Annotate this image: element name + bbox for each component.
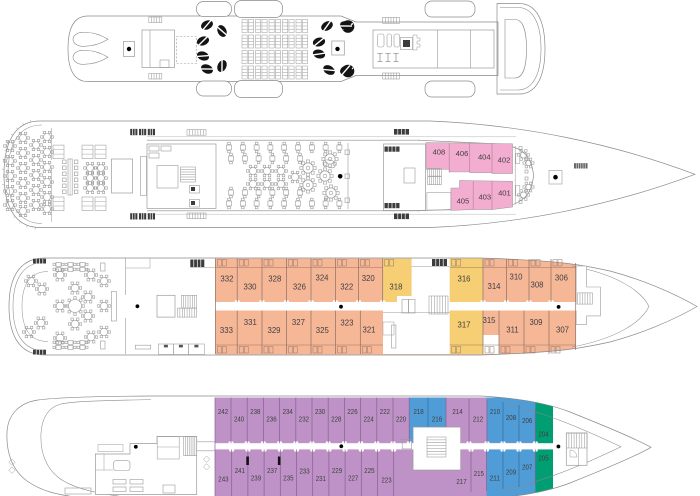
svg-text:237: 237 xyxy=(267,466,277,475)
svg-text:408: 408 xyxy=(433,148,446,157)
svg-text:205: 205 xyxy=(538,454,548,463)
svg-text:328: 328 xyxy=(268,274,281,283)
svg-text:224: 224 xyxy=(364,415,374,424)
svg-text:216: 216 xyxy=(432,415,442,424)
svg-text:227: 227 xyxy=(348,473,358,482)
svg-text:311: 311 xyxy=(506,326,518,335)
svg-text:206: 206 xyxy=(522,416,532,425)
svg-text:229: 229 xyxy=(332,466,342,475)
svg-text:314: 314 xyxy=(487,282,501,291)
svg-text:321: 321 xyxy=(362,326,375,335)
svg-text:327: 327 xyxy=(292,318,305,327)
svg-text:210: 210 xyxy=(490,407,500,416)
svg-text:215: 215 xyxy=(474,469,484,478)
svg-text:308: 308 xyxy=(530,281,543,290)
svg-text:223: 223 xyxy=(381,476,391,485)
svg-text:333: 333 xyxy=(220,326,233,335)
svg-text:330: 330 xyxy=(243,283,257,292)
svg-text:406: 406 xyxy=(456,149,469,158)
svg-text:230: 230 xyxy=(315,407,325,416)
svg-text:214: 214 xyxy=(452,407,462,416)
svg-text:332: 332 xyxy=(220,274,233,283)
svg-text:404: 404 xyxy=(478,153,491,162)
svg-text:317: 317 xyxy=(457,321,470,330)
svg-text:238: 238 xyxy=(250,407,260,416)
svg-text:405: 405 xyxy=(457,196,470,205)
svg-text:243: 243 xyxy=(218,474,228,483)
svg-text:324: 324 xyxy=(315,274,329,283)
svg-text:228: 228 xyxy=(331,415,341,424)
svg-text:331: 331 xyxy=(244,318,257,327)
svg-text:320: 320 xyxy=(362,274,376,283)
svg-text:326: 326 xyxy=(293,283,306,292)
svg-text:306: 306 xyxy=(555,274,568,283)
svg-text:233: 233 xyxy=(300,467,310,476)
svg-text:235: 235 xyxy=(283,473,293,482)
svg-text:241: 241 xyxy=(235,466,245,475)
svg-text:309: 309 xyxy=(529,318,542,327)
svg-text:239: 239 xyxy=(251,473,261,482)
svg-text:209: 209 xyxy=(506,468,516,477)
svg-text:204: 204 xyxy=(538,429,548,438)
svg-text:318: 318 xyxy=(389,283,402,292)
svg-text:401: 401 xyxy=(498,189,511,198)
svg-text:226: 226 xyxy=(347,407,357,416)
svg-text:211: 211 xyxy=(490,473,500,482)
svg-text:218: 218 xyxy=(414,407,424,416)
svg-text:208: 208 xyxy=(506,413,516,422)
svg-text:207: 207 xyxy=(522,463,532,472)
svg-text:236: 236 xyxy=(266,415,276,424)
svg-text:310: 310 xyxy=(509,273,523,282)
svg-text:315: 315 xyxy=(482,316,496,325)
svg-text:232: 232 xyxy=(299,415,309,424)
svg-text:217: 217 xyxy=(456,477,466,486)
svg-text:212: 212 xyxy=(473,415,483,424)
svg-text:234: 234 xyxy=(283,407,293,416)
svg-text:242: 242 xyxy=(218,407,228,416)
svg-text:222: 222 xyxy=(380,407,390,416)
svg-text:329: 329 xyxy=(267,326,280,335)
svg-text:240: 240 xyxy=(234,415,244,424)
svg-text:307: 307 xyxy=(556,326,569,335)
svg-text:325: 325 xyxy=(316,326,330,335)
svg-text:316: 316 xyxy=(457,275,470,284)
svg-text:225: 225 xyxy=(364,466,374,475)
svg-text:402: 402 xyxy=(498,156,511,165)
svg-text:220: 220 xyxy=(396,415,406,424)
svg-text:403: 403 xyxy=(478,192,491,201)
svg-text:322: 322 xyxy=(340,283,353,292)
svg-text:323: 323 xyxy=(340,319,353,328)
svg-text:231: 231 xyxy=(316,474,326,483)
